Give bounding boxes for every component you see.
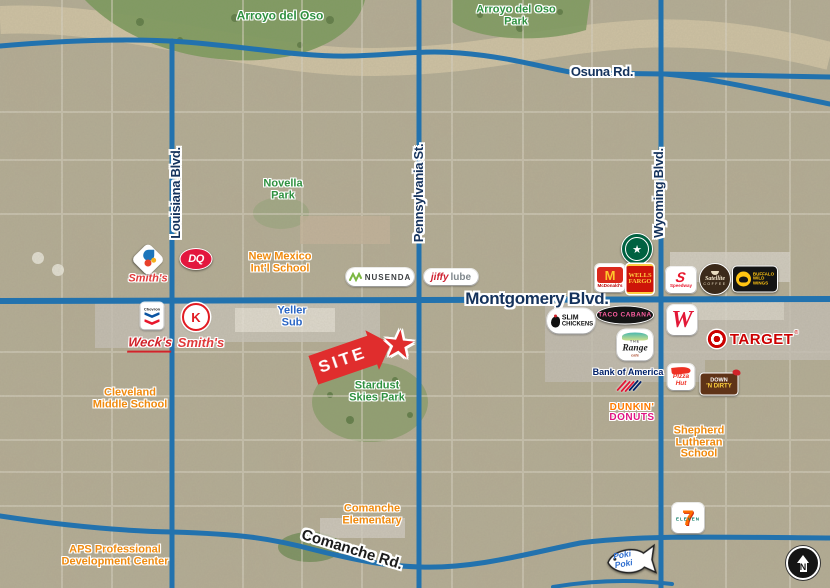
area-label-stardust-skies-park: Stardust Skies Park	[349, 380, 405, 403]
north-arrow-stem: N	[800, 563, 807, 572]
taco-cabana-logo: TACO CABANA	[596, 306, 654, 325]
boa-wordmark: Bank of America	[593, 368, 664, 377]
mcdonalds-red-box: M	[597, 267, 623, 283]
wells-wordmark-2: FARGO	[629, 279, 652, 286]
taco-cabana-wordmark: TACO CABANA	[598, 312, 651, 319]
poi-label-yeller-sub: Yeller Sub	[277, 305, 306, 328]
bank-of-america-logo: Bank of America	[593, 368, 664, 392]
north-arrow-icon	[797, 555, 809, 563]
street-label-montgomery: Montgomery Blvd.	[465, 290, 609, 308]
coffee-wordmark: COFFEE	[703, 283, 726, 287]
jiffy-wordmark: jiffy	[431, 272, 449, 283]
school-label-line: Cleveland	[93, 387, 168, 399]
smiths-diamond-icon	[131, 243, 165, 277]
buffalo-silhouette	[739, 276, 748, 282]
school-label-line: Elementary	[342, 515, 401, 527]
buffalo-wild-wings-logo: BUFFALO WILD WINGS	[732, 266, 778, 293]
area-label-line: Park	[263, 190, 302, 202]
area-label-line: Stardust	[349, 380, 405, 392]
aerial-photo-background	[0, 0, 830, 588]
street-label-louisiana: Louisiana Blvd.	[169, 147, 183, 239]
slim-wordmark-2: CHICKENS	[562, 322, 593, 328]
dairy-queen-logo: DQ	[180, 248, 213, 270]
nusenda-zigzag-icon	[349, 272, 362, 282]
target-bullseye-icon	[708, 330, 726, 348]
area-label-arroyo-del-oso-park: Arroyo del Oso Park	[476, 4, 555, 27]
smiths-wordmark-2: Smith's	[178, 336, 224, 350]
area-label-line: Skies Park	[349, 392, 405, 404]
dq-wordmark: DQ	[188, 254, 204, 265]
range-cafe-logo: THE Range café	[617, 330, 653, 361]
seven-eleven-logo: 7 ELEVEN	[672, 503, 704, 533]
coffee-cup-icon	[711, 271, 719, 275]
school-label-nm-intl: New Mexico Int'l School	[249, 251, 312, 274]
slim-chickens-logo: SLIM CHICKENS	[547, 309, 595, 334]
jiffy-lube-logo: jiffy lube	[424, 269, 478, 285]
golden-arches-icon: M	[605, 269, 616, 282]
circle-k-logo: K	[182, 303, 210, 331]
target-logo: TARGET ®	[708, 330, 798, 348]
school-label-line: New Mexico	[249, 251, 312, 263]
area-label-arroyo-del-oso: Arroyo del Oso	[237, 10, 324, 23]
street-label-osuna: Osuna Rd.	[571, 65, 633, 79]
dunkin-donuts-logo: DUNKIN' DONUTS	[609, 403, 654, 423]
chevron-red-icon	[145, 319, 160, 325]
pizza-hut-logo: Pizza Hut	[668, 364, 695, 390]
school-label-line: School	[674, 449, 725, 461]
school-label-aps-center: APS Professional Development Center	[62, 544, 169, 567]
school-label-comanche-elementary: Comanche Elementary	[342, 503, 401, 526]
walgreens-logo: W	[667, 305, 697, 335]
area-label-line: Novella	[263, 178, 302, 190]
eleven-wordmark: ELEVEN	[676, 517, 700, 522]
site-star-icon: ★	[380, 324, 418, 365]
school-label-line: Shepherd	[674, 426, 725, 438]
school-label-line: Middle School	[93, 399, 168, 411]
nusenda-wordmark: NUSENDA	[365, 273, 412, 282]
mcdonalds-wordmark: McDonald's	[597, 284, 622, 289]
boa-flag-icon	[614, 378, 642, 392]
walgreens-w-icon: W	[671, 308, 692, 332]
street-label-pennsylvania: Pennsylvania St.	[412, 144, 426, 243]
speedway-logo: S Speedway	[666, 267, 696, 293]
north-compass: N	[786, 546, 820, 580]
dnd-wordmark-2: 'N DIRTY	[706, 384, 731, 390]
street-label-wyoming: Wyoming Blvd.	[652, 148, 666, 238]
area-label-line: Arroyo del Oso	[476, 4, 555, 16]
poki-poki-logo: Poki Poki	[604, 541, 660, 581]
aerial-site-map: Osuna Rd. Montgomery Blvd. Comanche Rd. …	[0, 0, 830, 588]
nusenda-logo: NUSENDA	[346, 268, 414, 286]
chevron-blue-icon	[145, 312, 160, 318]
bww-wordmark-3: WINGS	[753, 281, 768, 286]
poi-label-line: Yeller	[277, 305, 306, 317]
mcdonalds-logo: M McDonald's	[595, 264, 625, 292]
school-label-cleveland: Cleveland Middle School	[93, 387, 168, 410]
area-label-novella-park: Novella Park	[263, 178, 302, 201]
chevron-wordmark: Chevron	[144, 307, 160, 311]
pizza-wordmark-2: Hut	[676, 381, 687, 388]
circle-k-wordmark: K	[191, 310, 200, 325]
target-wordmark: TARGET	[730, 331, 794, 348]
buffalo-icon	[736, 272, 751, 287]
satellite-coffee-logo: Satellite COFFEE	[699, 263, 731, 295]
starbucks-logo: ★	[621, 233, 653, 265]
chevron-logo: Chevron	[141, 303, 164, 330]
slim-wordmark-1: SLIM	[562, 315, 579, 322]
starbucks-siren-icon: ★	[625, 237, 649, 261]
wecks-logo: Weck's	[127, 336, 173, 353]
rooster-icon	[549, 315, 560, 328]
school-label-line: Int'l School	[249, 263, 312, 275]
school-label-shepherd: Shepherd Lutheran School	[674, 426, 725, 461]
crawfish-icon	[733, 370, 741, 376]
north-label: N	[800, 562, 807, 572]
poi-label-line: Sub	[277, 317, 306, 329]
lube-wordmark: lube	[451, 272, 472, 283]
school-label-line: APS Professional	[62, 544, 169, 556]
down-n-dirty-logo: DOWN 'N DIRTY	[700, 373, 739, 396]
range-cafe: café	[631, 353, 639, 357]
dunkin-wordmark-2: DONUTS	[609, 413, 654, 423]
smiths-logo: Smith's	[125, 248, 171, 285]
school-label-line: Development Center	[62, 556, 169, 568]
smiths-wordmark: Smith's	[128, 274, 167, 285]
area-label-line: Park	[476, 16, 555, 28]
target-registered-mark: ®	[794, 330, 798, 336]
school-label-line: Comanche	[342, 503, 401, 515]
wells-fargo-logo: WELLS FARGO	[627, 264, 654, 294]
